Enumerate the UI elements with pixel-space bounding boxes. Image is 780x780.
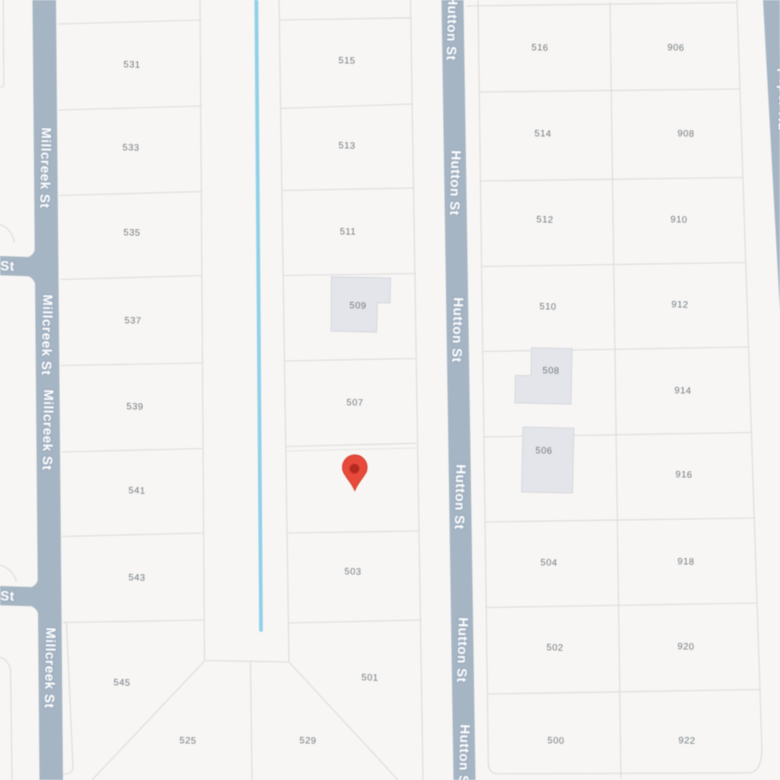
svg-text:920: 920 — [677, 641, 694, 651]
svg-text:510: 510 — [539, 301, 556, 311]
svg-text:509: 509 — [349, 300, 366, 310]
svg-text:511: 511 — [340, 226, 357, 236]
svg-text:501: 501 — [361, 672, 378, 682]
svg-text:531: 531 — [123, 59, 140, 69]
svg-text:539: 539 — [126, 401, 143, 411]
svg-text:922: 922 — [678, 735, 695, 745]
svg-text:508: 508 — [542, 365, 559, 375]
svg-text:513: 513 — [338, 140, 355, 150]
svg-text:514: 514 — [534, 128, 551, 138]
svg-text:Hutton St: Hutton St — [447, 150, 464, 216]
svg-text:545: 545 — [113, 677, 130, 687]
svg-text:Millcreek St: Millcreek St — [39, 294, 55, 375]
svg-text:543: 543 — [128, 572, 145, 582]
svg-text:910: 910 — [670, 214, 687, 224]
svg-text:914: 914 — [674, 385, 691, 395]
svg-text:507: 507 — [346, 397, 363, 407]
svg-text:St: St — [0, 588, 15, 603]
svg-text:512: 512 — [536, 214, 553, 224]
svg-text:502: 502 — [546, 642, 563, 652]
svg-text:Hutton St: Hutton St — [444, 0, 461, 61]
svg-text:Millcreek St: Millcreek St — [42, 627, 58, 708]
svg-text:504: 504 — [540, 557, 557, 567]
svg-text:916: 916 — [675, 469, 692, 479]
svg-text:908: 908 — [677, 128, 694, 138]
svg-text:541: 541 — [128, 485, 145, 495]
svg-text:Millcreek St: Millcreek St — [40, 389, 56, 470]
svg-text:St: St — [0, 258, 15, 273]
svg-text:Hutton St: Hutton St — [454, 617, 471, 683]
svg-text:516: 516 — [531, 42, 548, 52]
svg-text:918: 918 — [677, 556, 694, 566]
svg-text:529: 529 — [299, 735, 316, 745]
svg-text:906: 906 — [667, 42, 684, 52]
svg-text:525: 525 — [179, 735, 196, 745]
svg-text:535: 535 — [123, 227, 140, 237]
svg-text:537: 537 — [124, 315, 141, 325]
svg-text:Hutton St: Hutton St — [449, 297, 466, 363]
svg-text:533: 533 — [122, 142, 139, 152]
svg-text:506: 506 — [535, 445, 552, 455]
svg-text:Hutton St: Hutton St — [452, 464, 469, 530]
svg-text:503: 503 — [344, 566, 361, 576]
svg-text:500: 500 — [547, 735, 564, 745]
svg-text:515: 515 — [338, 55, 355, 65]
svg-text:Hutton St: Hutton St — [456, 724, 473, 780]
svg-text:Millcreek St: Millcreek St — [37, 127, 53, 208]
svg-text:912: 912 — [671, 299, 688, 309]
